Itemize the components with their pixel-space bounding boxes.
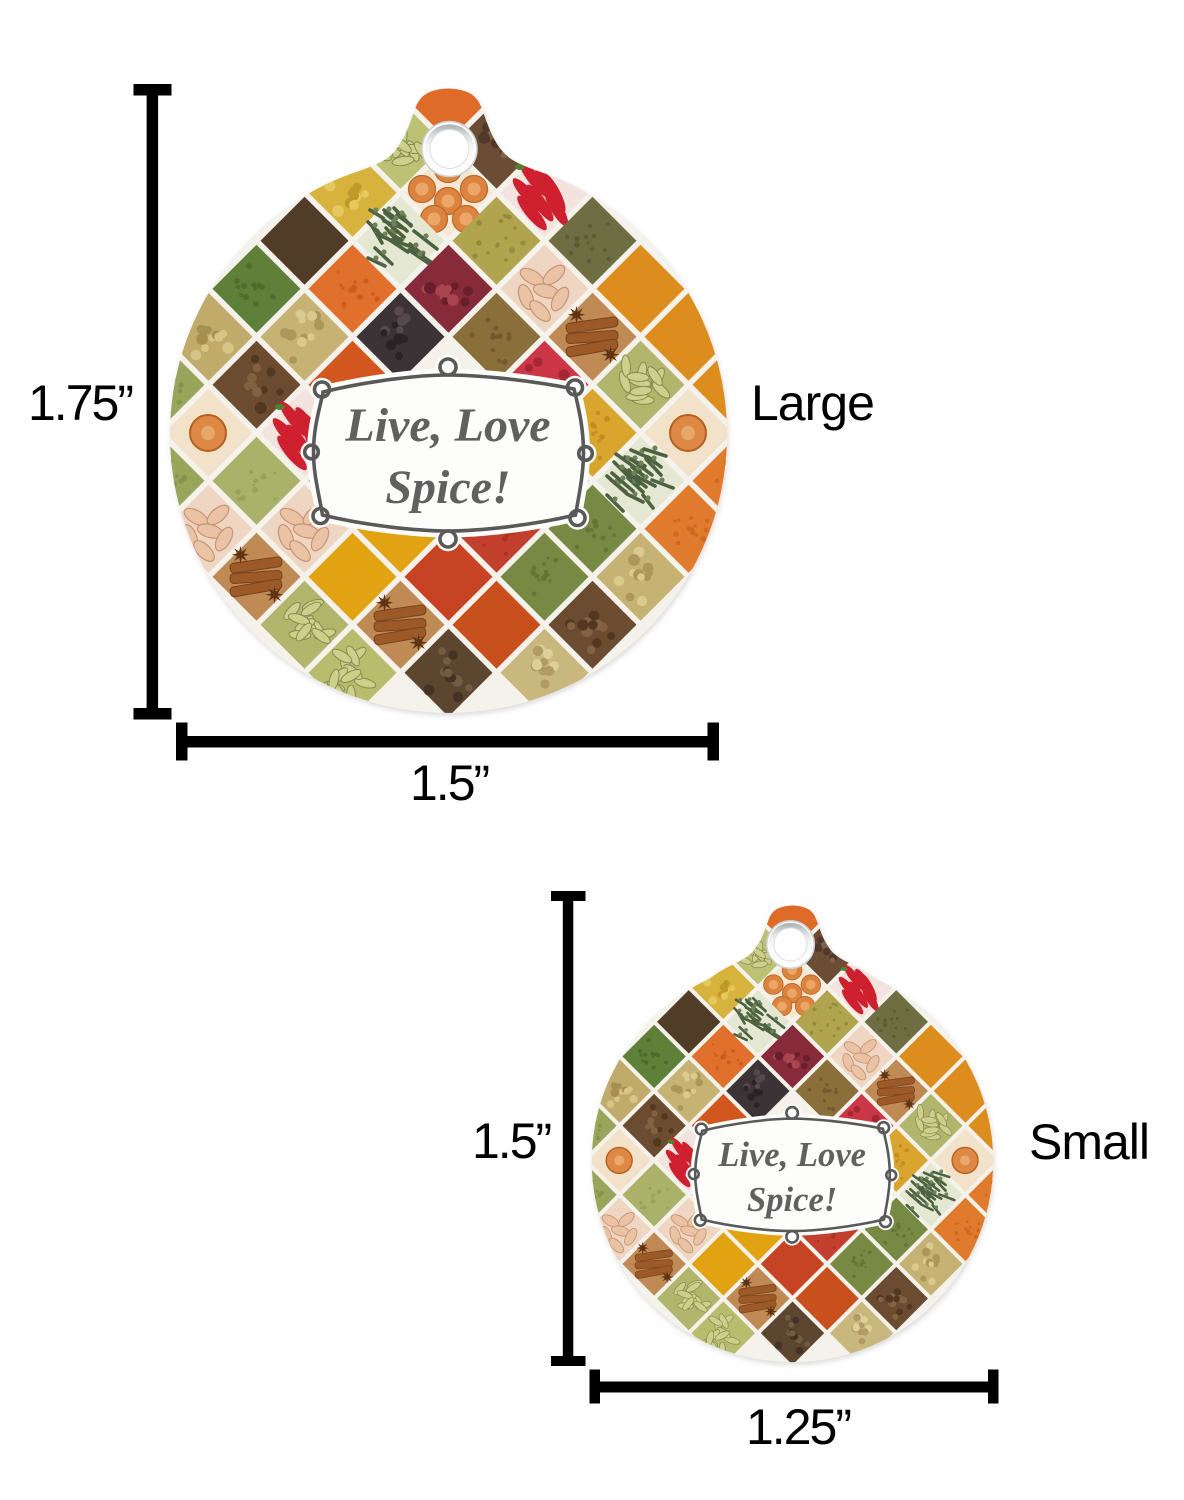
svg-text:Large: Large	[751, 375, 874, 431]
svg-text:1.5”: 1.5”	[472, 1113, 551, 1169]
svg-text:Small: Small	[1029, 1114, 1149, 1170]
svg-text:1.25”: 1.25”	[746, 1399, 850, 1455]
svg-text:1.5”: 1.5”	[410, 755, 489, 811]
svg-text:1.75”: 1.75”	[28, 375, 132, 431]
